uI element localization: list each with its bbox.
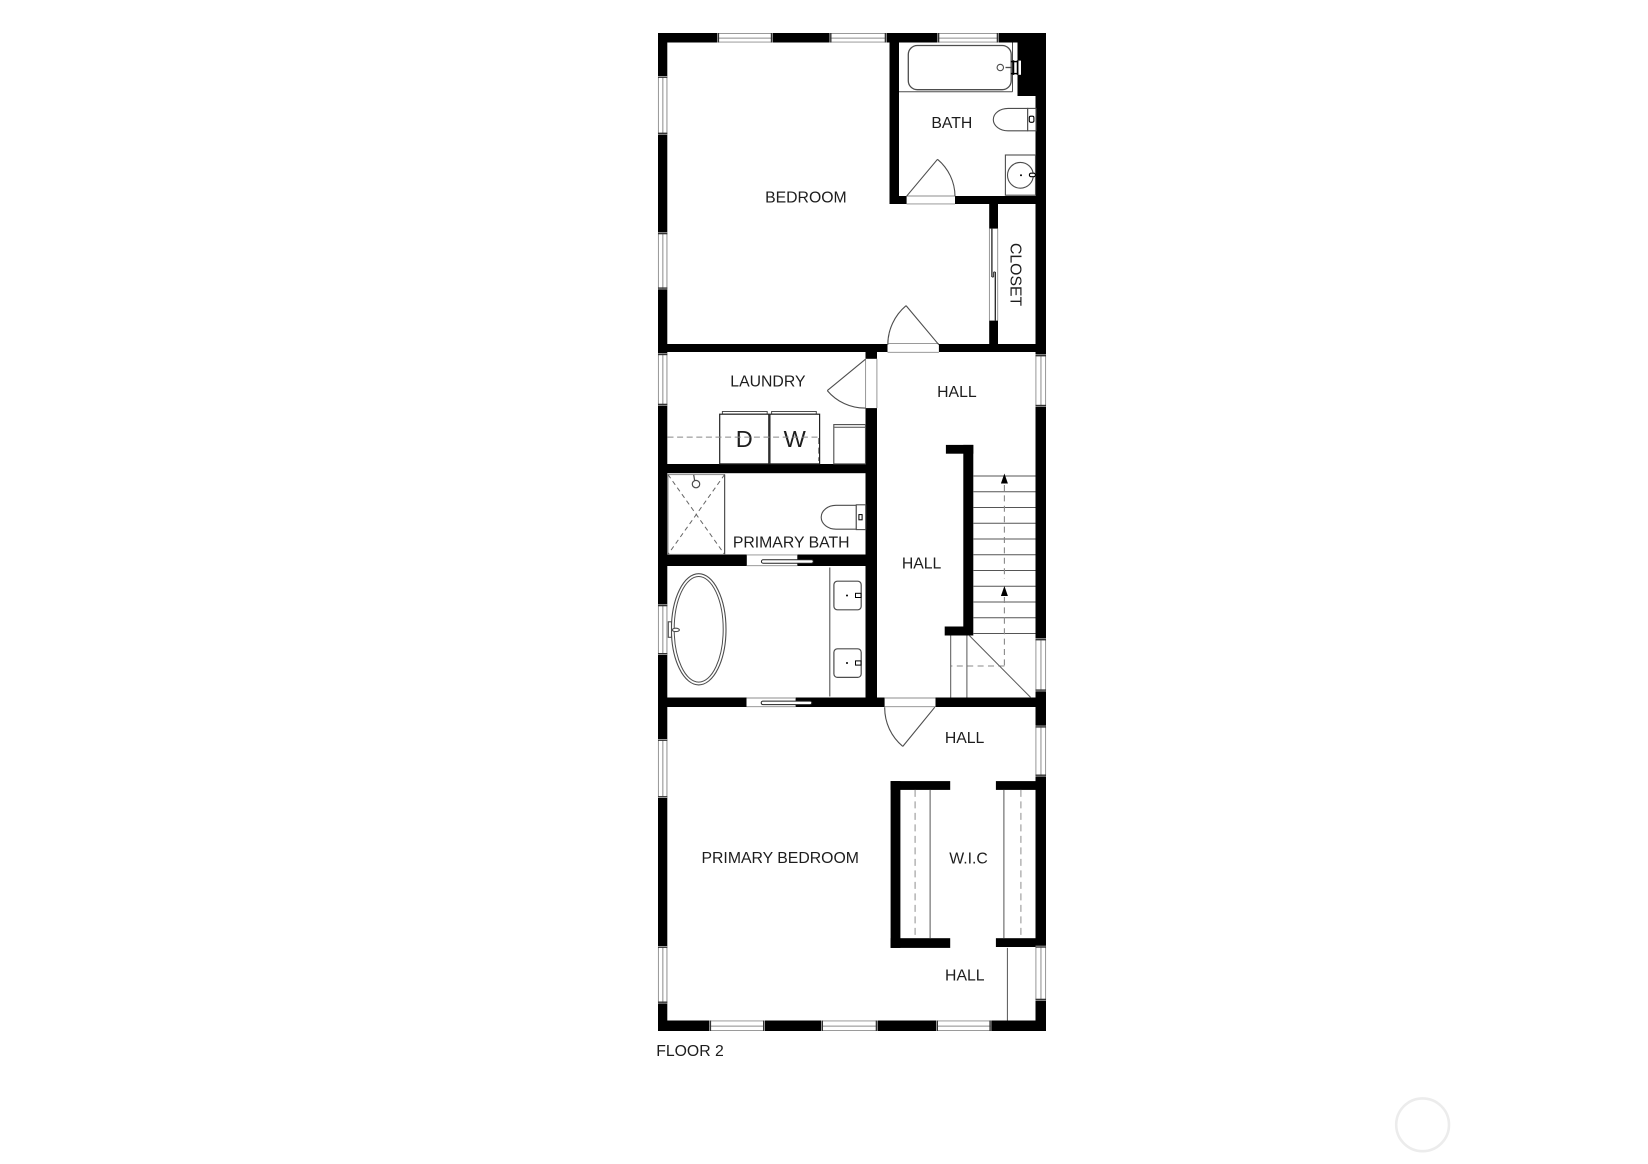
svg-text:HALL: HALL — [902, 556, 942, 573]
svg-text:D: D — [736, 426, 753, 452]
svg-text:W.I.C: W.I.C — [949, 850, 988, 867]
svg-text:PRIMARY BEDROOM: PRIMARY BEDROOM — [701, 850, 858, 867]
svg-text:CLOSET: CLOSET — [1007, 243, 1024, 307]
svg-text:HALL: HALL — [937, 384, 977, 401]
svg-text:HALL: HALL — [945, 730, 985, 747]
svg-text:FLOOR 2: FLOOR 2 — [656, 1043, 724, 1060]
svg-text:W: W — [784, 426, 807, 452]
svg-text:HALL: HALL — [945, 968, 985, 985]
svg-text:BATH: BATH — [931, 115, 972, 132]
svg-text:BEDROOM: BEDROOM — [765, 190, 847, 207]
svg-text:PRIMARY BATH: PRIMARY BATH — [733, 535, 850, 552]
svg-text:LAUNDRY: LAUNDRY — [730, 374, 806, 391]
